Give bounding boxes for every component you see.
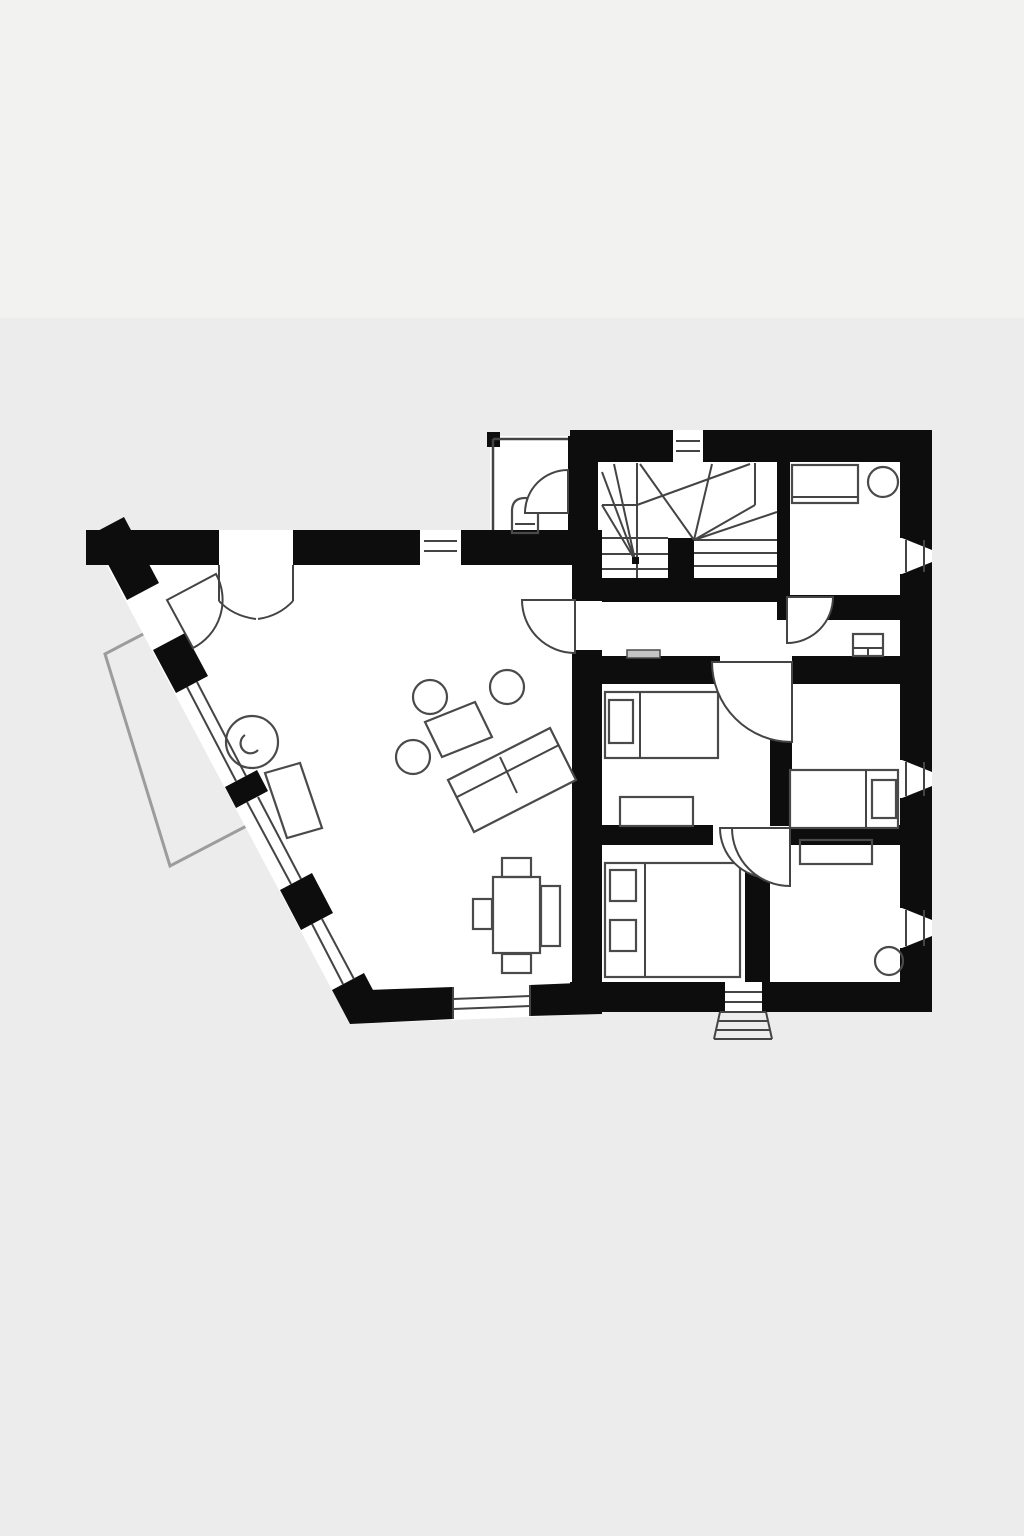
floor-plan-canvas: [0, 0, 1024, 1536]
wall-living-east-a: [572, 565, 602, 601]
wall-wc-east: [568, 436, 598, 530]
wall-east-3: [900, 798, 932, 908]
wall-stair-south: [602, 578, 777, 602]
wall-stair-east: [777, 462, 790, 602]
dining-table: [493, 877, 540, 953]
wall-east-1: [900, 430, 932, 538]
wall-north-right: [703, 430, 932, 462]
wall-south-right-b: [762, 982, 932, 1012]
stair-newel-post: [668, 538, 694, 580]
stair-winder-node: [632, 557, 639, 564]
bed-double: [605, 863, 740, 977]
wall-east-2: [900, 574, 932, 760]
wall-living-east-b: [572, 650, 602, 984]
bed-single: [605, 692, 718, 758]
wall-top-right: [461, 530, 602, 565]
page-background-top-band: [0, 0, 1024, 318]
wall-hall-south-b: [792, 656, 900, 684]
radiator: [627, 650, 660, 658]
wall-top-mid: [293, 530, 420, 565]
wall-south-left-b: [530, 982, 602, 1016]
bed-single: [790, 770, 898, 828]
radiator: [853, 634, 883, 656]
wall-hall-south-a: [602, 656, 720, 684]
wall-bedrooms-south-a: [602, 825, 713, 845]
